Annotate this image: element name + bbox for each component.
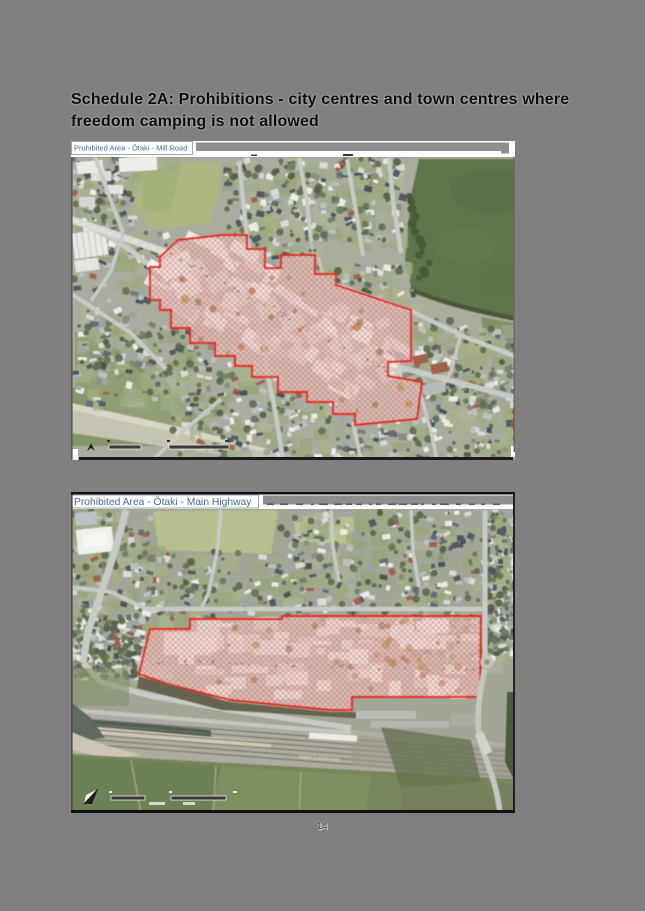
svg-text:Prohibited Area - Ōtaki - Mill: Prohibited Area - Ōtaki - Mill Road <box>74 144 187 153</box>
svg-text:Prohibited Area - Ōtaki - Main: Prohibited Area - Ōtaki - Main Highway <box>74 496 252 508</box>
